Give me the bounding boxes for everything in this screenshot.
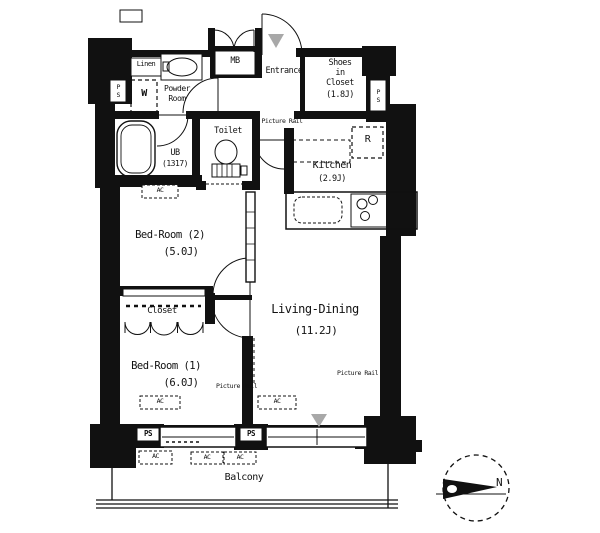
linen-label: Linen xyxy=(131,61,161,68)
bath-door-arc xyxy=(157,115,188,146)
shoes-closet-label-2: in xyxy=(310,69,370,78)
closet-bifold-doors-arc xyxy=(125,322,203,335)
bathtub xyxy=(117,121,155,177)
living-dining-label-2: (11.2J) xyxy=(266,325,366,337)
ac-label-living: AC xyxy=(258,398,296,405)
floor-plan-drawing xyxy=(0,0,600,533)
ac-label-balcony1: AC xyxy=(139,453,172,460)
floor-plan: Linen Powder Room MB Entrance Shoes in C… xyxy=(0,0,600,533)
bedroom2-label-1: Bed-Room (2) xyxy=(120,230,220,241)
duct-box xyxy=(120,10,142,22)
pipe-space-bottom2-label: PS xyxy=(240,430,262,438)
toilet-label: Toilet xyxy=(202,127,254,136)
powder-room-label-1: Powder xyxy=(154,85,200,93)
unit-bath-label-1: UB xyxy=(155,149,195,158)
picture-rail-label-living: Picture Rail xyxy=(324,370,378,377)
toilet-fixture xyxy=(206,140,247,184)
bedroom2-door-arc xyxy=(213,258,250,295)
pipe-space-bottom1-label: PS xyxy=(137,430,159,438)
ac-label-balcony2: AC xyxy=(191,454,223,461)
sliding-door xyxy=(246,192,255,282)
window-bedroom1 xyxy=(160,427,236,447)
window-living xyxy=(266,427,367,447)
bedroom2-label-2: (5.0J) xyxy=(131,247,231,258)
pipe-space-right-label: PS xyxy=(370,80,386,111)
north-label: N xyxy=(492,477,506,489)
picture-rail-label-entrance: Picture Rail xyxy=(256,118,308,125)
unit-bath-label-2: (1317) xyxy=(150,160,200,168)
stove-burners xyxy=(357,196,378,221)
ac-label-bedroom1: AC xyxy=(140,398,180,405)
closet-label: Closet xyxy=(136,307,188,316)
entrance-label: Entrance xyxy=(257,67,311,76)
balcony-label: Balcony xyxy=(212,473,276,484)
shoes-closet-label-4: (1.8J) xyxy=(310,91,370,100)
shoes-closet-label-3: Closet xyxy=(310,79,370,88)
kitchen-label-1: Kitchen xyxy=(300,161,364,172)
living-dining-label-1: Living-Dining xyxy=(250,303,380,316)
shoes-closet-label-1: Shoes xyxy=(310,59,370,68)
kitchen-label-2: (2.9J) xyxy=(305,175,359,184)
pipe-space-left-label: PS xyxy=(110,80,126,102)
bedroom1-label-1: Bed-Room (1) xyxy=(116,361,216,372)
meter-box-label: MB xyxy=(215,57,255,66)
refrigerator-label: R xyxy=(352,135,383,146)
closet-track xyxy=(123,289,205,296)
ac-label-balcony3: AC xyxy=(224,454,256,461)
cupboard-space xyxy=(292,140,350,162)
entry-marker-icon xyxy=(268,34,284,48)
powder-room-label-2: Room xyxy=(154,95,200,103)
ac-label-bedroom2: AC xyxy=(142,187,178,194)
balcony-railing xyxy=(96,464,398,508)
picture-rail-label-bedroom1: Picture Rail xyxy=(203,383,257,390)
living-door-arc xyxy=(212,300,250,338)
washer-label: W xyxy=(134,89,154,100)
